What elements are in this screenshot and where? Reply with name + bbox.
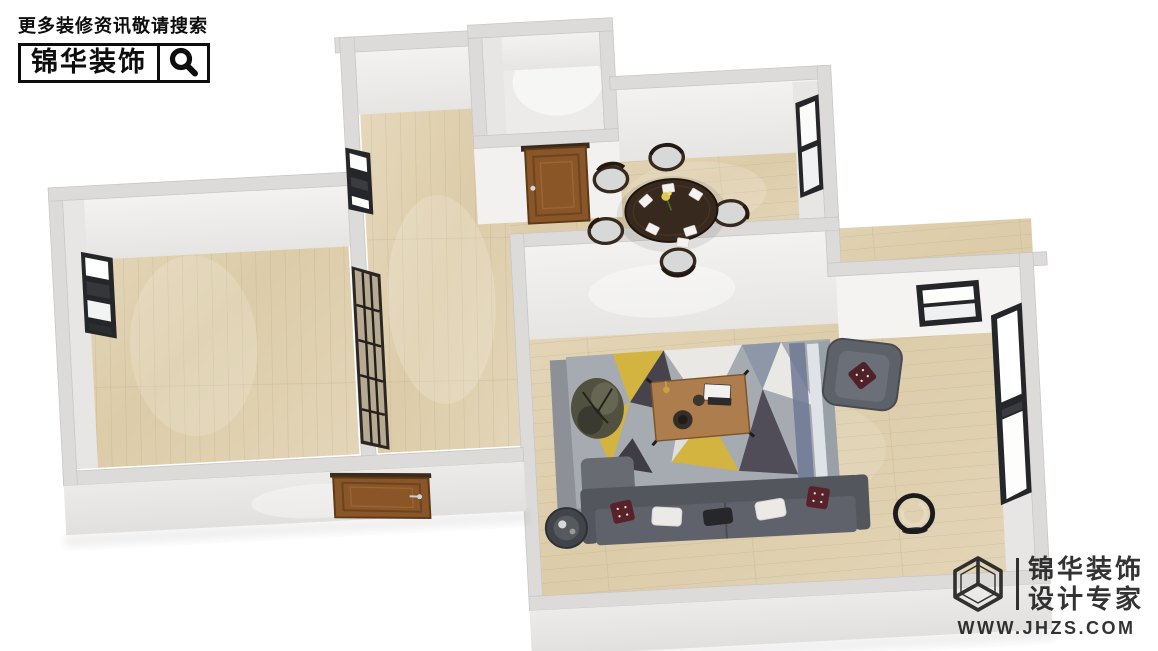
brand-line-1: 锦华装饰 bbox=[1028, 554, 1144, 585]
brand-logo-box: 锦华装饰 bbox=[18, 43, 210, 83]
logo-row: 锦华装饰 设计专家 bbox=[949, 554, 1144, 615]
dining-chair bbox=[661, 248, 696, 276]
book-dark bbox=[708, 397, 732, 406]
cube-logo-icon bbox=[949, 555, 1007, 613]
magnifier-cell bbox=[157, 46, 207, 80]
plan-group bbox=[39, 0, 1067, 651]
sofa-pillow-red bbox=[806, 486, 831, 510]
brand-text-lines: 锦华装饰 设计专家 bbox=[1028, 554, 1144, 615]
top-left-branding: 更多装修资讯敬请搜索 锦华装饰 bbox=[18, 12, 210, 83]
entry-door bbox=[330, 468, 433, 524]
dining-chair bbox=[713, 200, 748, 226]
brand-name: 锦华装饰 bbox=[21, 46, 157, 80]
side-table bbox=[545, 507, 588, 549]
dining-north-wall-face bbox=[614, 79, 821, 162]
search-tagline: 更多装修资讯敬请搜索 bbox=[18, 12, 210, 38]
dining-chair bbox=[593, 163, 628, 193]
left-room-window bbox=[81, 250, 117, 340]
magnifier-icon bbox=[167, 46, 201, 80]
hall-west-window bbox=[345, 146, 373, 216]
hall-north-wall-face bbox=[355, 45, 484, 114]
sofa-pillow-white bbox=[652, 507, 682, 526]
dining-chair bbox=[589, 218, 624, 244]
bottom-right-branding: 锦华装饰 设计专家 WWW.JHZS.COM bbox=[949, 554, 1144, 639]
website-url: WWW.JHZS.COM bbox=[958, 618, 1136, 639]
brand-line-2: 设计专家 bbox=[1028, 584, 1144, 615]
dining-chair bbox=[649, 144, 684, 171]
coffee-table bbox=[647, 370, 754, 445]
armchair bbox=[821, 337, 903, 412]
floorplan-render-page: 更多装修资讯敬请搜索 锦华装饰 bbox=[0, 0, 1158, 651]
logo-divider bbox=[1016, 558, 1019, 610]
small-room-door bbox=[521, 142, 594, 223]
soffit-window bbox=[916, 280, 982, 327]
